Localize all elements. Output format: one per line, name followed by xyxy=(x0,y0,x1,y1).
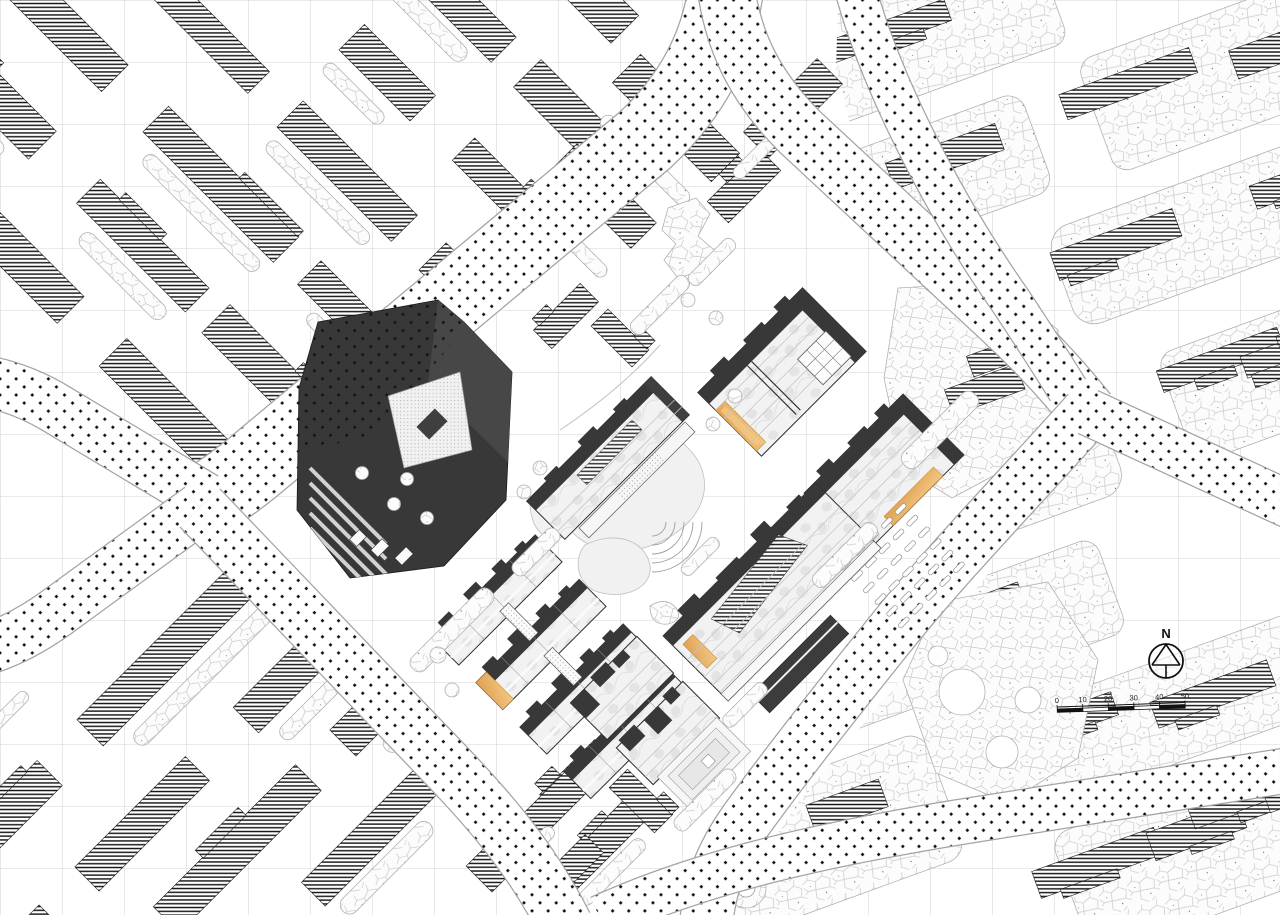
scale-label: 20 xyxy=(1104,694,1113,703)
scale-label: 40 xyxy=(1155,692,1164,701)
scale-label: 30 xyxy=(1129,693,1138,702)
scale-label: 0 xyxy=(1055,696,1059,705)
park-clearing xyxy=(1015,687,1041,713)
park-clearing xyxy=(928,646,948,666)
scale-label: 10 xyxy=(1078,695,1087,704)
park-clearing xyxy=(986,736,1018,768)
site-plan: N 0 10 20 30 40 50 xyxy=(0,0,1280,915)
site-plan-canvas: N 0 10 20 30 40 50 xyxy=(0,0,1280,915)
scale-label: 50 xyxy=(1181,691,1190,700)
north-label: N xyxy=(1161,626,1170,641)
park-clearing xyxy=(939,669,985,715)
